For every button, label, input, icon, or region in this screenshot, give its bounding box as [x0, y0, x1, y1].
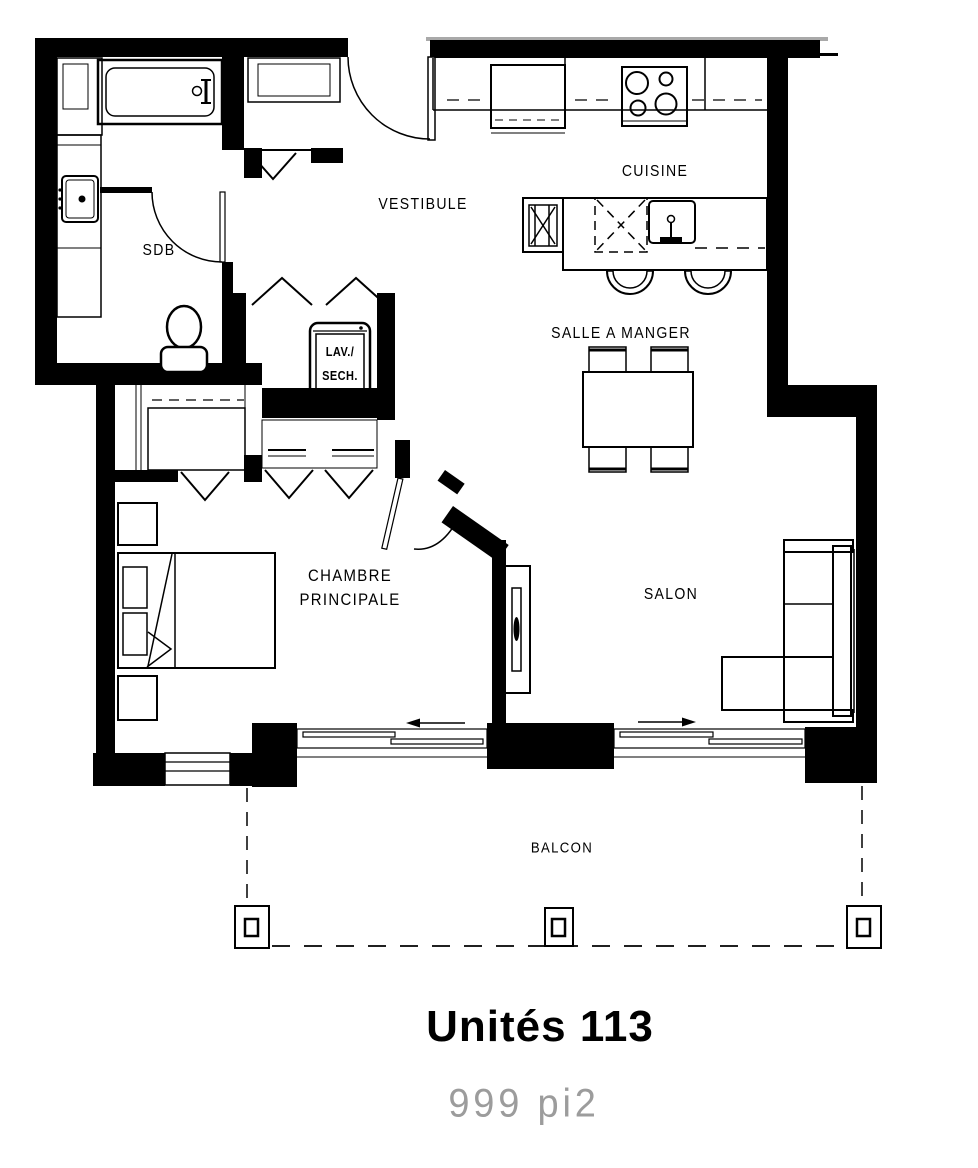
bathtub [98, 60, 222, 124]
label-cuisine: CUISINE [622, 163, 688, 181]
nightstand-bottom [118, 676, 157, 720]
entry-door [348, 57, 435, 140]
laundry-closet-bifold-doors [252, 278, 386, 305]
floor-plan-drawing [0, 0, 978, 968]
sliding-door-bedroom [297, 719, 487, 758]
walls [35, 37, 877, 787]
island-appliance [523, 198, 563, 252]
fridge [491, 65, 565, 133]
sectional-sofa [722, 540, 854, 722]
tv-unit [505, 566, 530, 693]
label-vestibule: VESTIBULE [378, 196, 467, 214]
bedroom-closet-2 [262, 420, 377, 498]
dining-table-chairs [583, 347, 693, 472]
label-lav-line2: SECH. [322, 369, 358, 383]
label-lav-line1: LAV./ [326, 345, 354, 359]
label-chambre-line2: PRINCIPALE [299, 590, 400, 610]
bedroom-window [165, 753, 230, 785]
floor-plan: SDB VESTIBULE CUISINE SALLE A MANGER LAV… [0, 0, 978, 1168]
toilet [161, 306, 207, 372]
unit-title: Unités 113 [426, 1002, 654, 1052]
label-salle-a-manger: SALLE A MANGER [551, 325, 691, 343]
washer-dryer-unit [310, 323, 370, 397]
nightstand-top [118, 503, 157, 545]
slide-arrow-right [682, 718, 696, 727]
slide-arrow-left [406, 719, 420, 728]
bathroom-vanity-sink [57, 135, 101, 317]
label-sdb: SDB [143, 242, 176, 260]
label-chambre-line1: CHAMBRE [308, 566, 392, 586]
bathroom-cabinet [57, 58, 102, 135]
balcony-posts [235, 906, 881, 948]
bedroom-door [382, 478, 459, 549]
bed [118, 553, 275, 668]
dishwasher [595, 198, 647, 252]
kitchen-island [563, 198, 767, 270]
unit-area-label: 999 pi2 [448, 1082, 599, 1127]
label-salon: SALON [644, 586, 698, 604]
stove [622, 67, 687, 126]
kitchen-counter [433, 58, 767, 110]
label-balcon: BALCON [531, 840, 593, 857]
island-stools [607, 271, 731, 294]
bedroom-closet-1 [136, 385, 245, 500]
kitchen-sink [649, 201, 695, 243]
sliding-door-salon [614, 718, 805, 758]
